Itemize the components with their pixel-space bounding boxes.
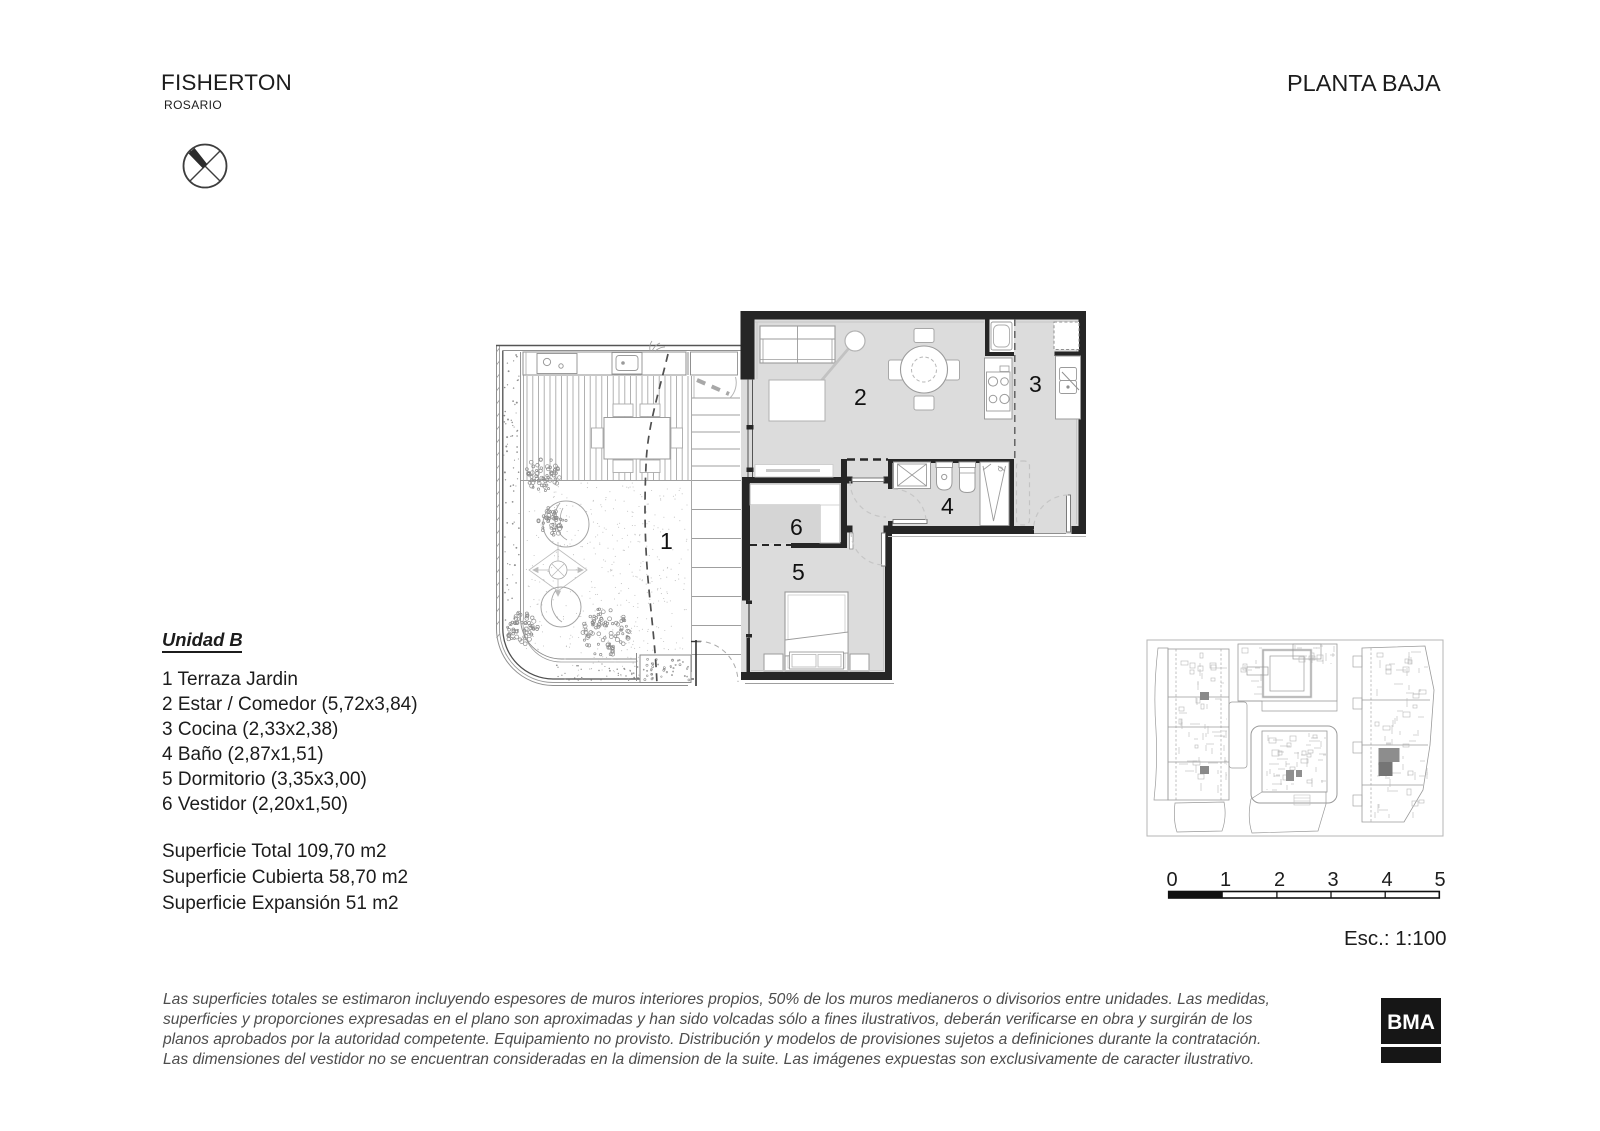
svg-text:5: 5 bbox=[792, 559, 805, 585]
svg-text:2: 2 bbox=[854, 384, 867, 410]
svg-text:4: 4 bbox=[941, 493, 954, 519]
svg-text:3: 3 bbox=[1029, 371, 1042, 397]
svg-text:1: 1 bbox=[660, 528, 673, 554]
svg-text:6: 6 bbox=[790, 514, 803, 540]
